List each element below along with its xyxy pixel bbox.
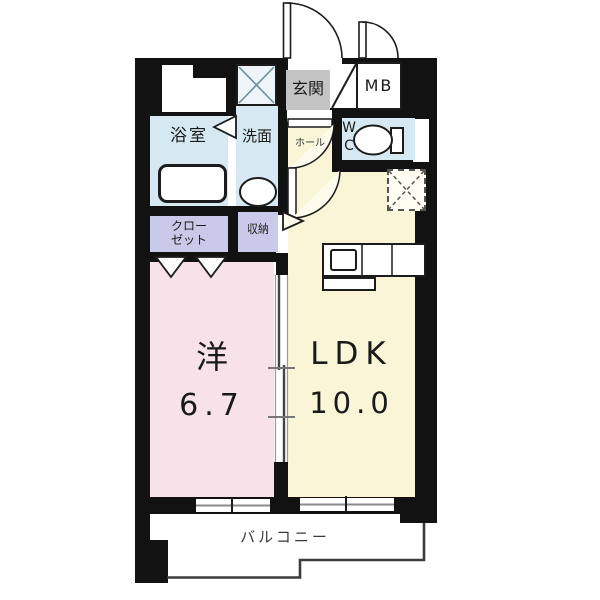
washer-pan-x <box>239 67 274 103</box>
mb-label: MB <box>356 75 402 97</box>
mb-door-arc <box>363 22 399 58</box>
ldk-door-leaf <box>288 168 296 218</box>
hall-door-leaf <box>288 119 332 127</box>
closet-door-triangle-1 <box>156 257 186 277</box>
washroom-label: 洗面 <box>234 127 280 147</box>
genkan-label: 玄関 <box>286 79 330 99</box>
fridge-space-x <box>389 171 424 209</box>
ldk-label: LDK <box>288 334 415 376</box>
entrance-door-arc <box>287 3 342 58</box>
bathroom-label: 浴室 <box>150 127 228 147</box>
entrance-door-leaf <box>284 3 291 58</box>
floorplan-canvas: 浴室 洗面 玄関 MB W C ホール クローゼット 収納 洋 6.7 LDK … <box>0 0 600 600</box>
hall-label: ホール <box>288 137 332 151</box>
western-room-size: 6.7 <box>150 386 274 426</box>
closet-door-triangle-2 <box>196 257 226 277</box>
wc-label-w: W <box>340 118 358 138</box>
western-room-label: 洋 <box>150 337 274 377</box>
mb-door-leaf <box>359 22 366 58</box>
ldk-door-arc <box>292 170 340 218</box>
closet-label: クローゼット <box>150 218 228 250</box>
kitchen-counter-dividers <box>362 245 392 275</box>
ldk-size: 10.0 <box>288 384 415 424</box>
storage-label: 収納 <box>240 221 276 239</box>
balcony-label: バルコニー <box>200 528 370 548</box>
washroom-sink <box>240 178 276 206</box>
wc-label-c: C <box>340 136 358 156</box>
toilet-bowl <box>354 126 392 155</box>
genkan-diagonal-line <box>332 64 356 108</box>
